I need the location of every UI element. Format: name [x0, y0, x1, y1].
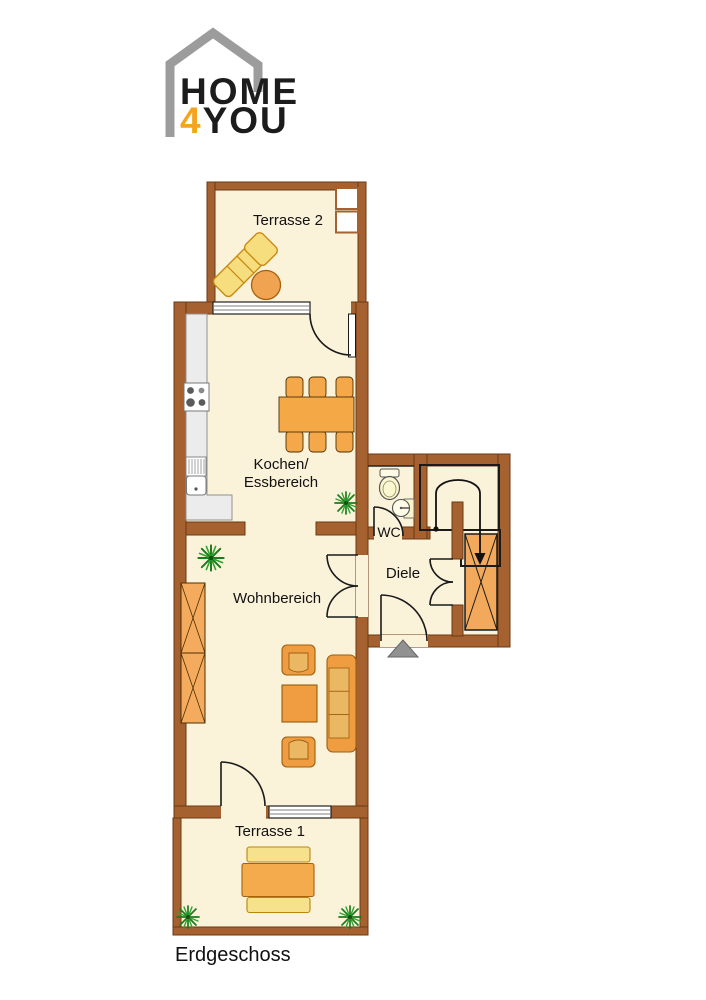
garden-table — [242, 864, 314, 897]
dining-chair — [309, 431, 326, 452]
wall-segment — [173, 927, 368, 935]
coffee-table — [282, 685, 317, 722]
kitchen-label-line1: Kochen/ — [253, 456, 309, 473]
terrace1-label: Terrasse 1 — [235, 823, 305, 840]
dining-chair — [286, 377, 303, 398]
living-window — [269, 806, 331, 818]
wall-segment — [452, 502, 463, 559]
wardrobe — [181, 583, 205, 723]
stove-icon — [184, 383, 209, 411]
logo-word-bottom: 4YOU — [180, 100, 289, 141]
washbasin-icon — [393, 499, 415, 518]
wall-segment — [358, 182, 366, 302]
dining-set — [279, 377, 354, 452]
floorplan-canvas: HOME 4YOU — [0, 0, 706, 1000]
dining-table — [279, 397, 354, 432]
logo-word-you: YOU — [203, 100, 289, 141]
armchair-bottom — [282, 737, 315, 767]
living-room-label: Wohnbereich — [233, 590, 321, 607]
kitchen-label-line2: Essbereich — [244, 474, 318, 491]
armchair-top — [282, 645, 315, 675]
dining-chair — [336, 377, 353, 398]
sink-icon — [186, 457, 206, 495]
plant-icon — [177, 906, 199, 928]
dining-chair — [286, 431, 303, 452]
plant-icon — [339, 906, 361, 928]
walking-line-start-dot — [433, 526, 438, 531]
wall-segment — [186, 522, 245, 535]
toilet-icon — [380, 469, 400, 500]
door-opening — [310, 301, 351, 315]
round-table-icon — [252, 271, 281, 300]
wall-segment — [452, 605, 463, 636]
wall-segment — [174, 302, 186, 818]
floor-level-label: Erdgeschoss — [175, 944, 291, 966]
dining-chair — [309, 377, 326, 398]
terrace2-label: Terrasse 2 — [253, 212, 323, 229]
plant-icon — [335, 492, 357, 514]
garden-bench — [247, 847, 310, 862]
hallway-label: Diele — [386, 565, 420, 582]
planter-box — [336, 188, 358, 209]
wall-segment — [316, 522, 356, 535]
sofa — [327, 655, 356, 752]
floorplan-page: HOME 4YOU — [0, 0, 706, 1000]
plant-icon — [198, 545, 223, 570]
kitchen-window — [213, 302, 310, 314]
wc-label: WC — [377, 524, 400, 540]
logo: HOME 4YOU — [170, 33, 299, 141]
garden-bench — [247, 898, 310, 913]
dining-chair — [336, 431, 353, 452]
terrace1-furniture — [242, 847, 314, 913]
door-opening — [221, 805, 266, 819]
logo-accent-digit: 4 — [180, 100, 203, 141]
planter-box — [336, 212, 358, 233]
